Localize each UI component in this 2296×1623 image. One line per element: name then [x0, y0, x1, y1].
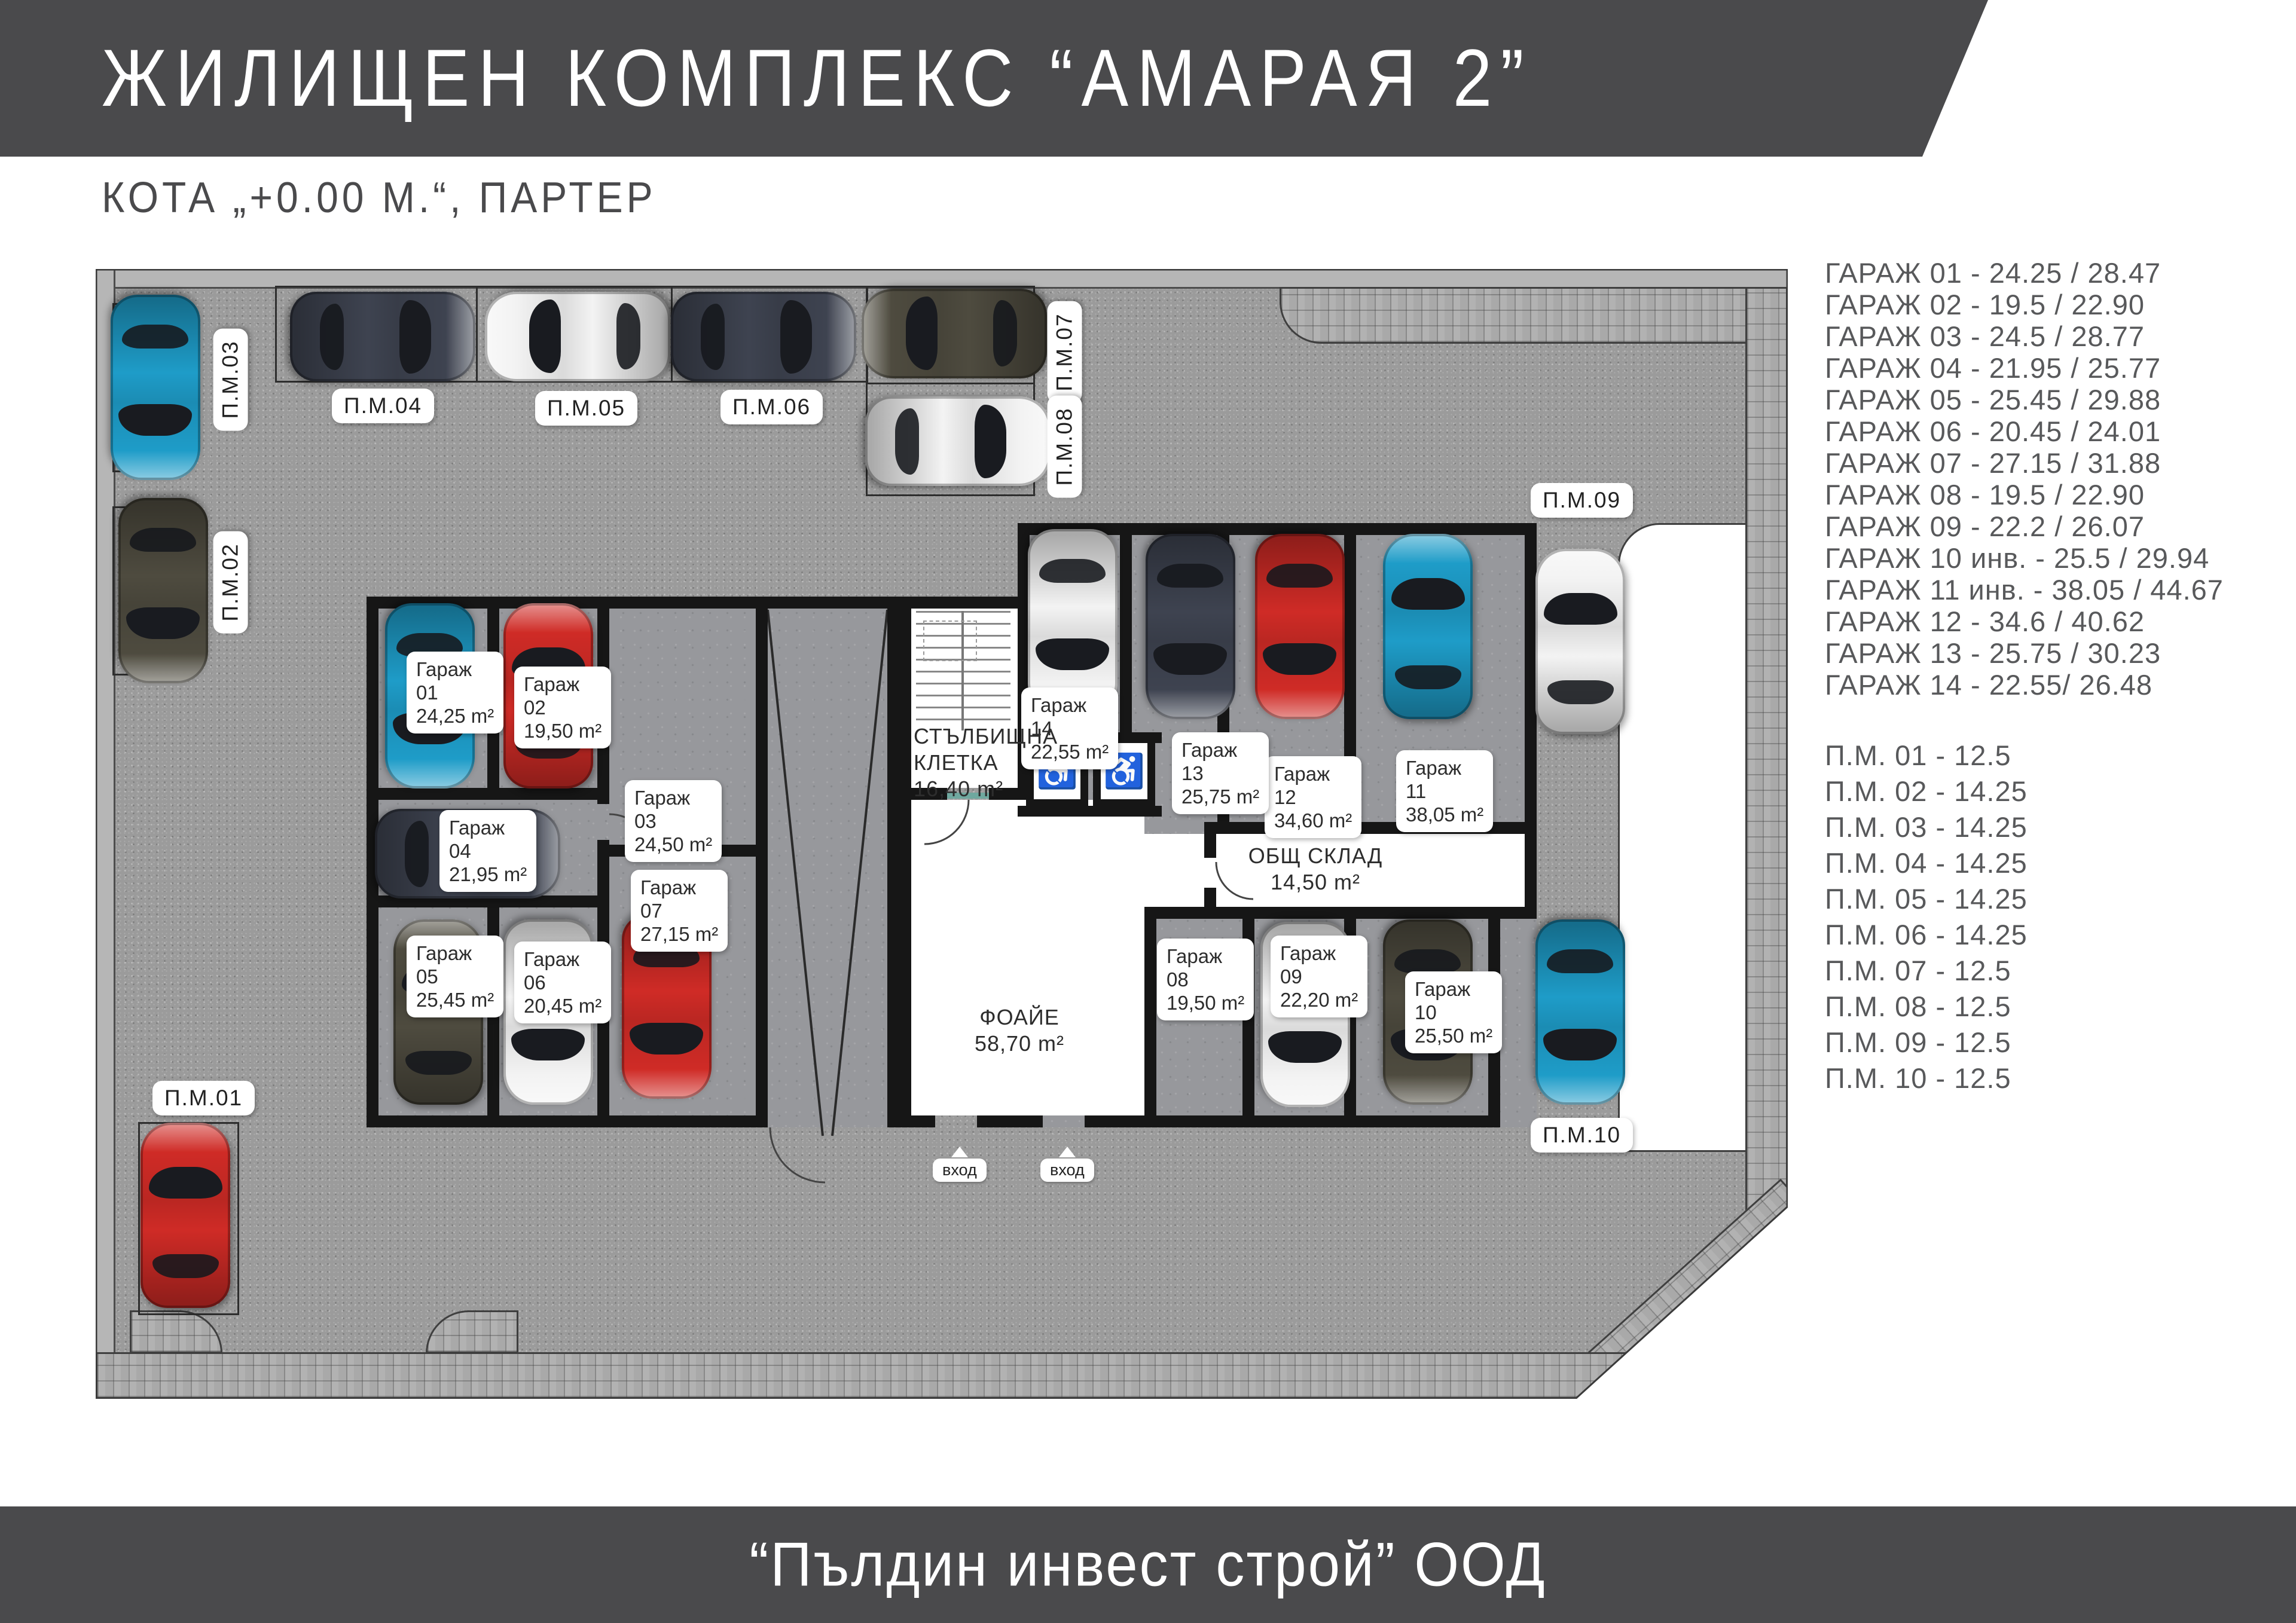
- garage-name: Гараж: [1031, 694, 1086, 716]
- car-garage13: [1146, 534, 1235, 719]
- wall: [977, 1115, 1043, 1127]
- legend-garage-line: ГАРАЖ 07 - 27.15 / 31.88: [1825, 447, 2285, 479]
- legend-pm-line: П.М. 01 - 12.5: [1825, 738, 2285, 774]
- legend-garage-line: ГАРАЖ 13 - 25.75 / 30.23: [1825, 637, 2285, 669]
- company-name: “Пълдин инвест строй” ООД: [749, 1529, 1546, 1600]
- garage-id: 01: [416, 681, 438, 704]
- car-pm05: [485, 292, 670, 381]
- page-subtitle: КОТА „+0.00 М.“, ПАРТЕР: [102, 172, 657, 222]
- garage-id: 04: [449, 840, 471, 862]
- legend-pm-line: П.М. 04 - 14.25: [1825, 845, 2285, 881]
- pm-label-03: П.М.03: [213, 328, 248, 430]
- wall: [1018, 806, 1162, 817]
- garage-name: Гараж: [1167, 945, 1222, 967]
- legend-pm-line: П.М. 10 - 12.5: [1825, 1060, 2285, 1096]
- wall: [887, 597, 911, 1127]
- garage-id: 07: [640, 900, 662, 922]
- legend-pm-line: П.М. 03 - 14.25: [1825, 809, 2285, 845]
- wall: [367, 1115, 768, 1127]
- wall: [1525, 523, 1537, 919]
- garage-label-11: Гараж 11 38,05 m²: [1396, 750, 1493, 832]
- garage-label-06: Гараж 06 20,45 m²: [514, 942, 611, 1023]
- garage-id: 13: [1181, 762, 1204, 784]
- legend-pm-line: П.М. 08 - 12.5: [1825, 989, 2285, 1025]
- floor-plan: ♿ ♿ Гараж 01 24,25 m² Гараж 02 19,50 m² …: [96, 269, 1788, 1399]
- foyer-line1: ФОАЙЕ: [979, 1005, 1059, 1029]
- garage-area: 19,50 m²: [524, 720, 602, 742]
- garage-id: 05: [416, 965, 438, 988]
- wall: [899, 1115, 935, 1127]
- legend-pm-line: П.М. 06 - 14.25: [1825, 917, 2285, 953]
- legend-pm-line: П.М. 07 - 12.5: [1825, 953, 2285, 989]
- car-pm10: [1535, 919, 1625, 1105]
- garage-label-12: Гараж 12 34,60 m²: [1265, 756, 1361, 838]
- garage-label-07: Гараж 07 27,15 m²: [631, 870, 728, 952]
- garage-area: 24,50 m²: [634, 833, 712, 855]
- header-banner: ЖИЛИЩЕН КОМПЛЕКС “АМАРАЯ 2”: [0, 0, 2296, 157]
- wall: [367, 788, 609, 800]
- garage-name: Гараж: [1181, 739, 1237, 761]
- garage-label-04: Гараж 04 21,95 m²: [439, 810, 536, 892]
- foyer-area: 58,70 m²: [975, 1031, 1064, 1056]
- legend-garage-line: ГАРАЖ 05 - 25.45 / 29.88: [1825, 384, 2285, 415]
- garage-label-02: Гараж 02 19,50 m²: [514, 667, 611, 748]
- footer-bar: “Пълдин инвест строй” ООД: [0, 1506, 2296, 1623]
- garage-area: 25,75 m²: [1181, 785, 1259, 808]
- garage-name: Гараж: [524, 673, 579, 695]
- pm-label-05: П.М.05: [535, 391, 637, 426]
- pm-label-02: П.М.02: [213, 531, 248, 633]
- garage-area: 34,60 m²: [1274, 809, 1352, 832]
- parking-divider: [866, 383, 1035, 384]
- legend-garage-line: ГАРАЖ 01 - 24.25 / 28.47: [1825, 257, 2285, 289]
- staircase-line2: КЛЕТКА: [914, 750, 999, 775]
- pm-label-01: П.М.01: [152, 1081, 255, 1115]
- wall: [1204, 822, 1216, 858]
- legend-pm-line: П.М. 02 - 14.25: [1825, 774, 2285, 809]
- garage-label-13: Гараж 13 25,75 m²: [1172, 732, 1269, 814]
- wall: [756, 597, 768, 1127]
- entrance-text: вход: [942, 1161, 977, 1179]
- garage-name: Гараж: [524, 948, 579, 970]
- staircase-line1: СТЪЛБИЩНА: [914, 724, 1058, 748]
- garage-name: Гараж: [1415, 978, 1470, 1000]
- car-garage14: [1028, 529, 1118, 714]
- legend-garage-line: ГАРАЖ 02 - 19.5 / 22.90: [1825, 289, 2285, 320]
- page-title: ЖИЛИЩЕН КОМПЛЕКС “АМАРАЯ 2”: [0, 32, 1532, 125]
- garage-name: Гараж: [640, 876, 696, 898]
- pm-label-04: П.М.04: [332, 389, 434, 423]
- garage-name: Гараж: [1280, 942, 1336, 964]
- garage-id: 08: [1167, 968, 1189, 991]
- pm-label-10: П.М.10: [1531, 1118, 1633, 1153]
- legend-garage-line: ГАРАЖ 10 инв. - 25.5 / 29.94: [1825, 542, 2285, 574]
- wall: [1120, 523, 1132, 732]
- pm-label-08: П.М.08: [1048, 395, 1082, 497]
- garage-id: 02: [524, 696, 546, 719]
- car-pm09: [1535, 549, 1625, 734]
- garage-label-01: Гараж 01 24,25 m²: [407, 652, 503, 733]
- parking-divider: [476, 286, 478, 383]
- foyer-label: ФОАЙЕ 58,70 m²: [957, 1004, 1082, 1057]
- legend-garage-line: ГАРАЖ 04 - 21.95 / 25.77: [1825, 352, 2285, 384]
- page: { "header": { "title": "ЖИЛИЩЕН КОМПЛЕКС…: [0, 0, 2296, 1623]
- garage-name: Гараж: [1406, 757, 1461, 779]
- staircase-area: 16,40 m²: [914, 777, 1003, 801]
- car-pm08: [865, 396, 1051, 486]
- garage-name: Гараж: [416, 658, 472, 680]
- garage-id: 10: [1415, 1001, 1437, 1023]
- legend-garage-line: ГАРАЖ 03 - 24.5 / 28.77: [1825, 320, 2285, 352]
- garage-name: Гараж: [449, 817, 505, 839]
- legend-pm-line: П.М. 09 - 12.5: [1825, 1025, 2285, 1060]
- garage-name: Гараж: [416, 942, 472, 964]
- garage-label-09: Гараж 09 22,20 m²: [1271, 936, 1367, 1017]
- garage-id: 11: [1406, 780, 1426, 802]
- entrance-label: вход: [933, 1159, 987, 1182]
- pm-label-06: П.М.06: [720, 390, 823, 424]
- legend-garage-line: ГАРАЖ 06 - 20.45 / 24.01: [1825, 415, 2285, 447]
- legend-garage-line: ГАРАЖ 14 - 22.55/ 26.48: [1825, 669, 2285, 701]
- car-pm06: [671, 292, 856, 381]
- wall: [367, 597, 1030, 609]
- garage-name: Гараж: [634, 787, 690, 809]
- garage-area: 21,95 m²: [449, 863, 527, 885]
- garage-area: 20,45 m²: [524, 995, 602, 1017]
- storage-area: 14,50 m²: [1271, 870, 1360, 894]
- garage-area: 25,50 m²: [1415, 1025, 1492, 1047]
- garage-area: 24,25 m²: [416, 705, 494, 727]
- garage-label-10: Гараж 10 25,50 m²: [1405, 971, 1502, 1053]
- legend-garage-line: ГАРАЖ 09 - 22.2 / 26.07: [1825, 511, 2285, 542]
- garage-area: 38,05 m²: [1406, 803, 1483, 826]
- legend-garage-line: ГАРАЖ 08 - 19.5 / 22.90: [1825, 479, 2285, 511]
- garage-id: 09: [1280, 965, 1302, 988]
- legend-pm-line: П.М. 05 - 14.25: [1825, 881, 2285, 917]
- car-garage11: [1383, 534, 1473, 719]
- storage-label: ОБЩ СКЛАД 14,50 m²: [1220, 843, 1411, 895]
- car-garage12: [1255, 534, 1345, 719]
- legend-garage-line: ГАРАЖ 12 - 34.6 / 40.62: [1825, 606, 2285, 637]
- entrance-text: вход: [1050, 1161, 1085, 1179]
- garage-label-08: Гараж 08 19,50 m²: [1157, 939, 1254, 1020]
- garage-id: 12: [1274, 786, 1296, 808]
- wall: [1144, 907, 1156, 1127]
- car-pm04: [290, 292, 475, 381]
- car-pm01: [141, 1123, 230, 1308]
- legend-pm-block: П.М. 01 - 12.5 П.М. 02 - 14.25 П.М. 03 -…: [1825, 738, 2285, 1096]
- entrance-label: вход: [1040, 1159, 1094, 1182]
- pm-label-09: П.М.09: [1531, 483, 1633, 518]
- wall: [1144, 1115, 1500, 1127]
- garage-label-05: Гараж 05 25,45 m²: [407, 936, 503, 1017]
- legend-garage-line: ГАРАЖ 11 инв. - 38.05 / 44.67: [1825, 574, 2285, 606]
- car-pm07: [862, 289, 1047, 378]
- storage-line1: ОБЩ СКЛАД: [1248, 843, 1383, 868]
- legend: ГАРАЖ 01 - 24.25 / 28.47 ГАРАЖ 02 - 19.5…: [1825, 257, 2285, 1096]
- garage-area: 25,45 m²: [416, 989, 494, 1011]
- garage-area: 19,50 m²: [1167, 992, 1244, 1014]
- wall: [1144, 907, 1537, 919]
- wall: [1085, 1115, 1144, 1127]
- pm-label-07: П.М.07: [1048, 301, 1082, 403]
- garage-name: Гараж: [1274, 763, 1330, 785]
- garage-area: 22,20 m²: [1280, 989, 1358, 1011]
- car-pm03: [111, 295, 200, 480]
- garage-id: 06: [524, 971, 546, 994]
- garage-label-03: Гараж 03 24,50 m²: [625, 780, 722, 862]
- staircase-label: СТЪЛБИЩНА КЛЕТКА 16,40 m²: [914, 723, 1058, 802]
- garage-area: 27,15 m²: [640, 923, 718, 945]
- garage-id: 03: [634, 810, 657, 832]
- car-pm02: [118, 498, 208, 683]
